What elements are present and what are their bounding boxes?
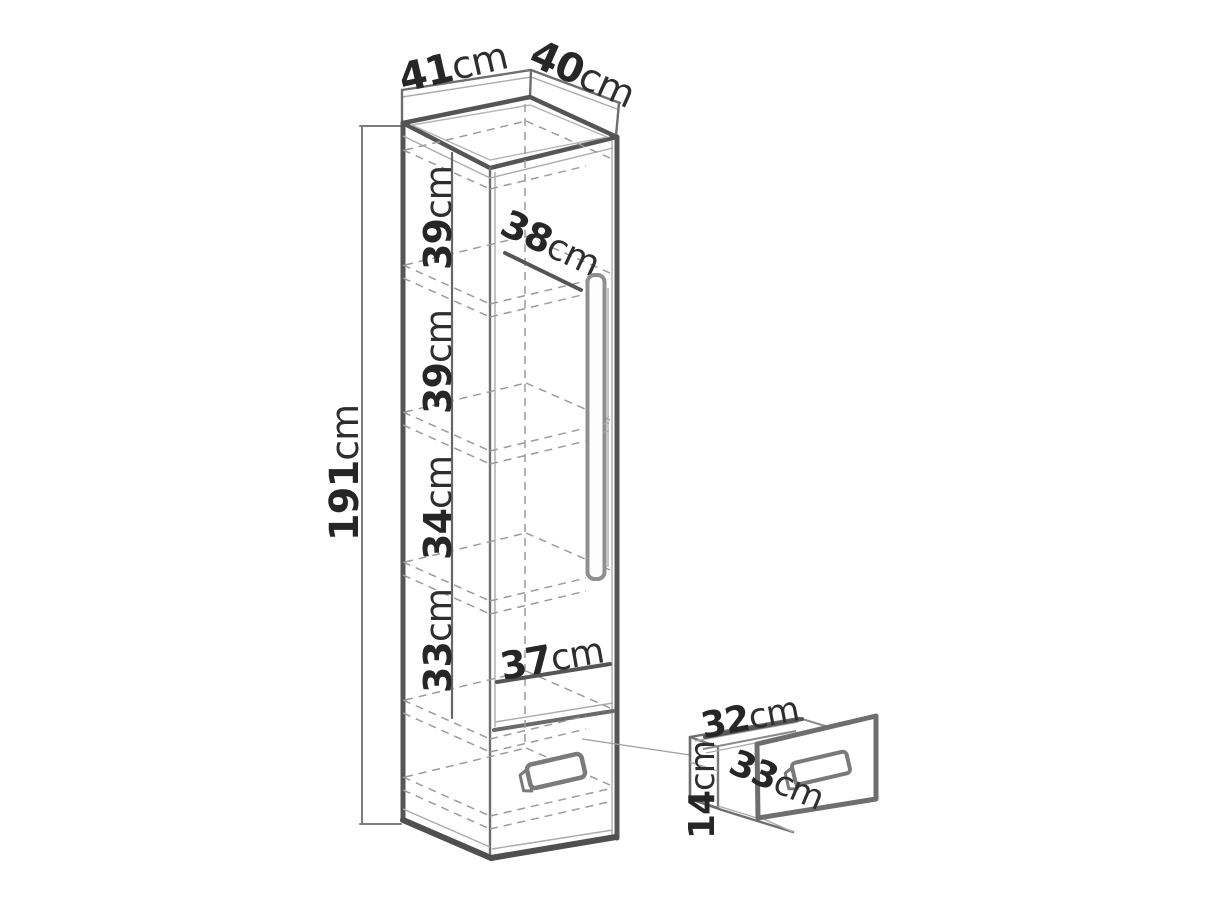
furniture-dimension-diagram: 41cm 40cm 191cm <box>0 0 1210 907</box>
diagram-canvas: 41cm 40cm 191cm <box>0 0 1210 907</box>
door-handle <box>588 275 610 579</box>
cabinet-width-label: 41cm <box>395 33 512 102</box>
section-height-label-2: 39cm <box>416 310 460 414</box>
cabinet-height-label: 191cm <box>322 405 368 541</box>
section-height-label-4: 33cm <box>416 589 460 693</box>
drawer-height-label: 14cm <box>682 741 723 839</box>
section-height-label-1: 39cm <box>416 166 460 270</box>
section-height-label-3: 34cm <box>416 456 460 560</box>
